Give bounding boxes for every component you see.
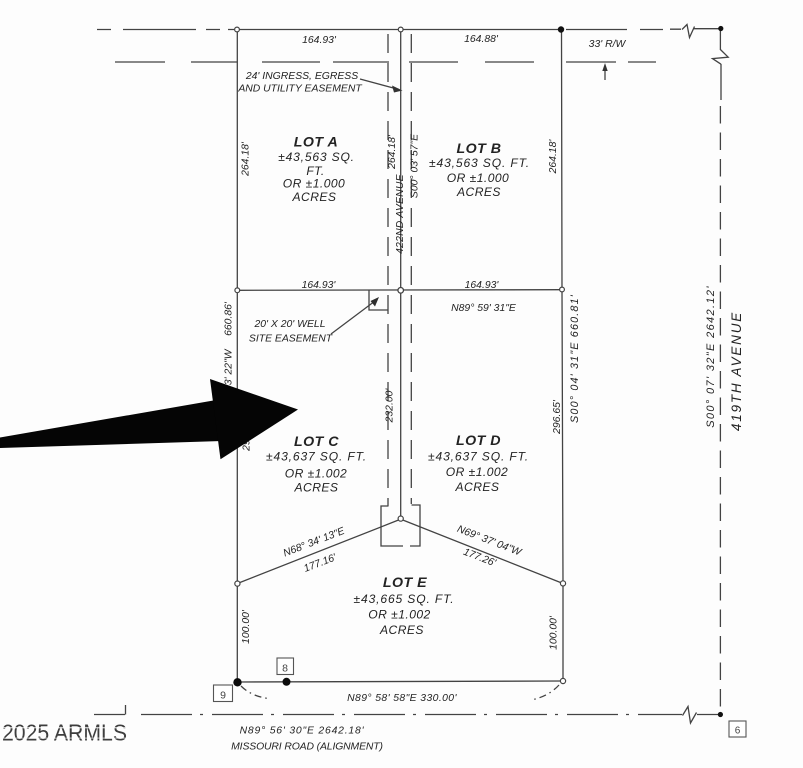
svg-text:264.18': 264.18' <box>387 134 398 170</box>
svg-text:164.93': 164.93' <box>302 35 337 46</box>
svg-text:164.93': 164.93' <box>302 280 337 291</box>
svg-text:LOT E: LOT E <box>383 575 427 591</box>
svg-text:OR ±1.000: OR ±1.000 <box>447 171 509 185</box>
svg-text:8: 8 <box>282 663 288 675</box>
svg-text:LOT A: LOT A <box>294 134 339 150</box>
svg-text:164.88': 164.88' <box>464 34 499 45</box>
svg-text:N89° 58' 58"E 330.00': N89° 58' 58"E 330.00' <box>347 693 457 704</box>
svg-text:LOT C: LOT C <box>294 434 339 450</box>
svg-text:422ND AVENUE: 422ND AVENUE <box>395 174 406 254</box>
svg-text:264.18': 264.18' <box>241 141 252 177</box>
svg-text:164.93': 164.93' <box>465 280 500 291</box>
svg-text:ACRES: ACRES <box>456 185 501 199</box>
svg-text:N68° 34' 13"E: N68° 34' 13"E <box>282 526 347 560</box>
svg-text:33' R/W: 33' R/W <box>589 39 627 50</box>
svg-text:100.00': 100.00' <box>549 615 560 650</box>
svg-text:S00° 03' 57"E: S00° 03' 57"E <box>410 133 421 198</box>
svg-text:OR ±1.000: OR ±1.000 <box>283 177 345 191</box>
svg-text:MISSOURI ROAD (ALIGNMENT): MISSOURI ROAD (ALIGNMENT) <box>231 742 383 753</box>
svg-text:2025 ARMLS: 2025 ARMLS <box>2 720 127 746</box>
svg-text:N89° 56' 30"E 2642.18': N89° 56' 30"E 2642.18' <box>240 726 365 737</box>
svg-text:±43,637 SQ. FT.: ±43,637 SQ. FT. <box>428 449 529 463</box>
svg-text:100.00': 100.00' <box>241 609 252 644</box>
svg-text:20' X 20' WELL: 20' X 20' WELL <box>254 319 326 330</box>
svg-text:419TH AVENUE: 419TH AVENUE <box>729 311 744 431</box>
svg-text:±43,563 SQ.: ±43,563 SQ. <box>278 150 355 164</box>
svg-text:SITE EASEMENT: SITE EASEMENT <box>249 333 333 344</box>
svg-text:S00° 07' 32"E 2642.12': S00° 07' 32"E 2642.12' <box>705 285 717 428</box>
svg-text:264.18': 264.18' <box>548 139 559 175</box>
svg-text:ACRES: ACRES <box>294 480 339 494</box>
svg-text:660.86': 660.86' <box>224 301 235 336</box>
svg-text:±43,637 SQ. FT.: ±43,637 SQ. FT. <box>266 449 367 463</box>
svg-text:ACRES: ACRES <box>292 190 337 204</box>
svg-text:N89° 59' 31"E: N89° 59' 31"E <box>451 303 517 314</box>
svg-text:OR ±1.002: OR ±1.002 <box>368 607 430 621</box>
svg-text:OR ±1.002: OR ±1.002 <box>446 465 508 479</box>
svg-text:AND UTILITY EASEMENT: AND UTILITY EASEMENT <box>237 84 362 95</box>
svg-text:232.00': 232.00' <box>385 388 396 424</box>
svg-text:24' INGRESS, EGRESS: 24' INGRESS, EGRESS <box>245 71 358 82</box>
svg-text:LOT B: LOT B <box>456 141 501 157</box>
svg-text:LOT D: LOT D <box>456 433 501 449</box>
svg-text:±43,665 SQ. FT.: ±43,665 SQ. FT. <box>354 592 455 606</box>
svg-text:9: 9 <box>220 690 226 702</box>
svg-text:±43,563 SQ. FT.: ±43,563 SQ. FT. <box>429 156 530 170</box>
svg-text:6: 6 <box>735 726 741 737</box>
svg-text:296.65': 296.65' <box>552 399 563 435</box>
svg-text:ACRES: ACRES <box>455 480 500 494</box>
svg-text:S00° 04' 31"E 660.81': S00° 04' 31"E 660.81' <box>569 294 581 423</box>
svg-text:ACRES: ACRES <box>379 623 424 637</box>
svg-text:OR ±1.002: OR ±1.002 <box>285 466 347 480</box>
